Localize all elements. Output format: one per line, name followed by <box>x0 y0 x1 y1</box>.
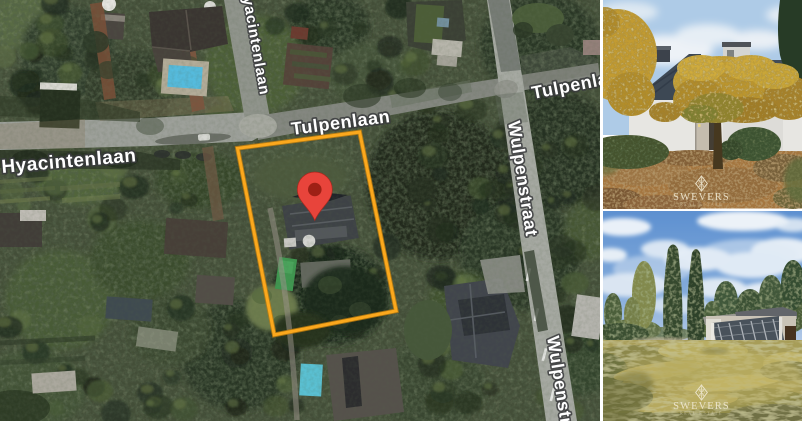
svg-text:REAL ESTATE: REAL ESTATE <box>680 202 723 207</box>
svg-text:REAL ESTATE: REAL ESTATE <box>680 411 723 416</box>
